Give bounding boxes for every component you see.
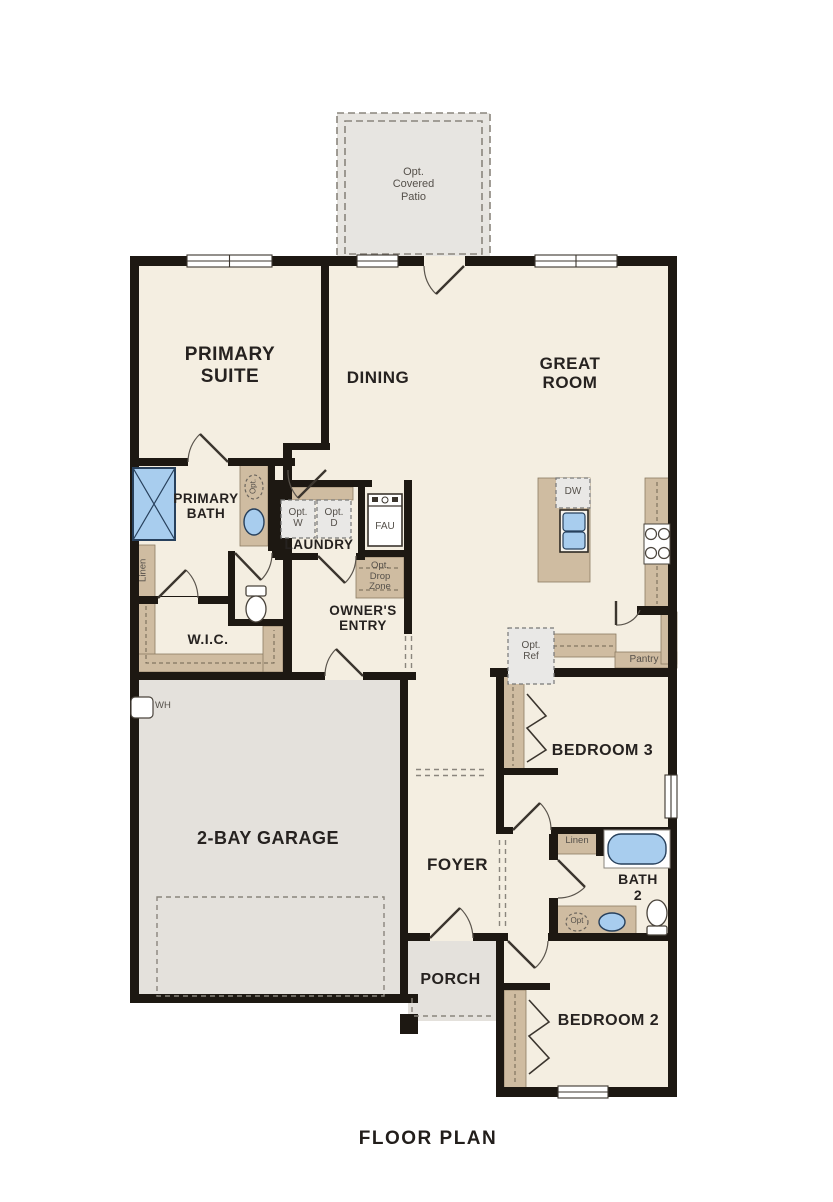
cooktop <box>644 524 670 564</box>
great-room-label: GREAT ROOM <box>520 354 620 393</box>
fau-unit <box>368 494 402 546</box>
bath2-toilet <box>647 900 667 935</box>
primary-bath-label: PRIMARY BATH <box>170 491 242 522</box>
primary-toilet <box>246 586 266 622</box>
wic-label: W.I.C. <box>168 632 248 648</box>
floor-plan-page: Opt. Covered Patio PRIMARY SUITE DINING … <box>0 0 833 1202</box>
bath2-label: BATH 2 <box>612 872 664 904</box>
bedroom3-label: BEDROOM 3 <box>540 742 665 760</box>
opt-sink-primary-label: Opt. <box>250 470 259 502</box>
dishwasher-label: DW <box>556 486 590 497</box>
dining-label: DINING <box>328 368 428 387</box>
bath2-sink <box>599 913 625 931</box>
porch-label: PORCH <box>413 971 488 989</box>
bedroom2-window <box>558 1086 608 1098</box>
primary-suite-label: PRIMARY SUITE <box>140 344 320 387</box>
dining-window <box>357 255 398 267</box>
opt-fridge-label: Opt. Ref <box>508 640 554 662</box>
linen-primary-label: Linen <box>139 550 150 590</box>
linen-bath2-label: Linen <box>556 836 598 847</box>
primary-sink <box>244 509 264 535</box>
fau-label: FAU <box>368 521 402 532</box>
kitchen-sink <box>560 510 588 552</box>
drop-zone-label: Opt. Drop Zone <box>356 561 404 593</box>
water-heater-box <box>131 697 153 718</box>
garage-label: 2-BAY GARAGE <box>178 828 358 849</box>
pantry-label: Pantry <box>615 654 673 665</box>
washer-label: Opt. W <box>281 507 315 529</box>
bedroom2-label: BEDROOM 2 <box>546 1012 671 1030</box>
bath2-tub <box>604 830 670 868</box>
shower <box>133 468 175 540</box>
great-room-window <box>535 255 617 267</box>
laundry-label: LAUNDRY <box>278 537 360 552</box>
bedroom3-window <box>665 775 677 818</box>
dryer-label: Opt. D <box>317 507 351 529</box>
patio-label: Opt. Covered Patio <box>337 166 490 203</box>
opt-sink-bath2-label: Opt <box>566 917 588 926</box>
foyer-label: FOYER <box>415 855 500 874</box>
wic-shelf-right <box>263 626 283 672</box>
page-title: FLOOR PLAN <box>328 1128 528 1150</box>
water-heater-label: WH <box>155 701 183 712</box>
porch-column <box>400 1014 418 1034</box>
owners-entry-label: OWNER'S ENTRY <box>318 603 408 634</box>
primary-suite-window <box>187 255 272 267</box>
